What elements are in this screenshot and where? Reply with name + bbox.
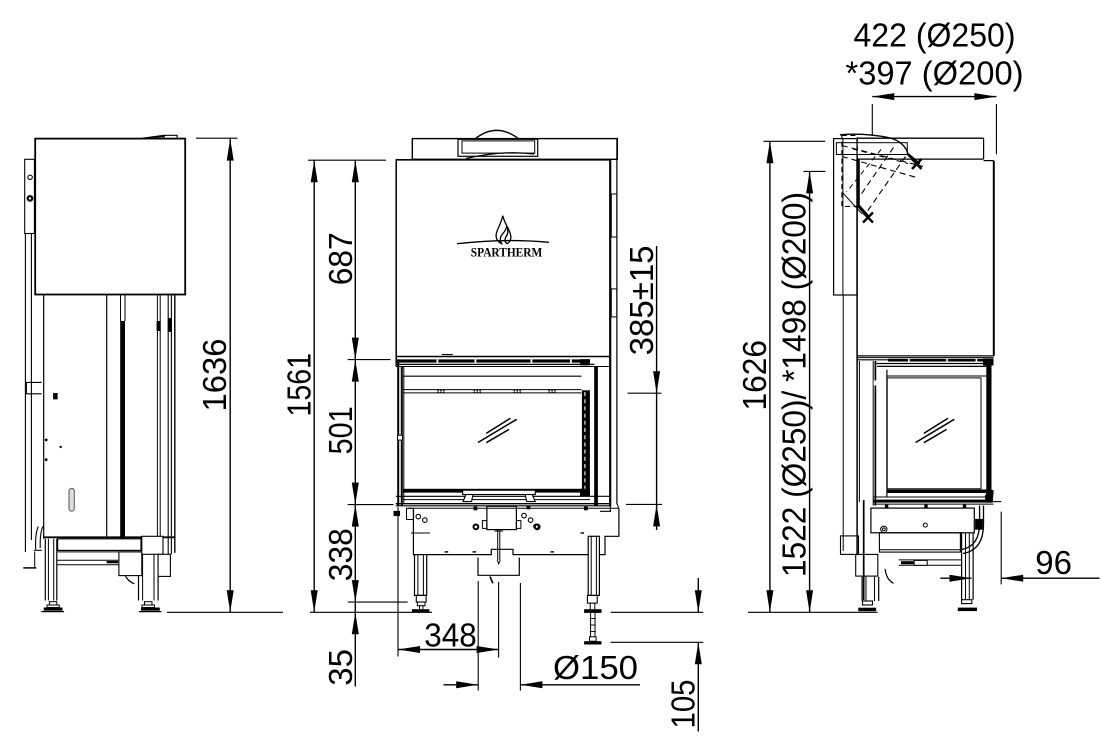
svg-text:1636: 1636 bbox=[196, 339, 233, 412]
svg-text:SPARTHERM: SPARTHERM bbox=[471, 244, 543, 259]
svg-text:687: 687 bbox=[322, 232, 359, 285]
svg-text:96: 96 bbox=[1035, 544, 1072, 581]
svg-text:105: 105 bbox=[665, 680, 702, 729]
svg-text:501: 501 bbox=[322, 406, 359, 454]
svg-text:35: 35 bbox=[322, 649, 359, 686]
svg-text:338: 338 bbox=[322, 528, 359, 581]
svg-text:385±15: 385±15 bbox=[623, 245, 660, 355]
svg-text:1522 (Ø250)/ *1498 (Ø200): 1522 (Ø250)/ *1498 (Ø200) bbox=[776, 192, 813, 577]
svg-text:*397 (Ø200): *397 (Ø200) bbox=[846, 55, 1024, 92]
svg-text:1626: 1626 bbox=[736, 340, 773, 411]
svg-text:348: 348 bbox=[424, 617, 477, 654]
svg-text:422 (Ø250): 422 (Ø250) bbox=[854, 16, 1016, 53]
svg-text:Ø150: Ø150 bbox=[553, 649, 638, 686]
svg-text:1561: 1561 bbox=[280, 353, 317, 417]
